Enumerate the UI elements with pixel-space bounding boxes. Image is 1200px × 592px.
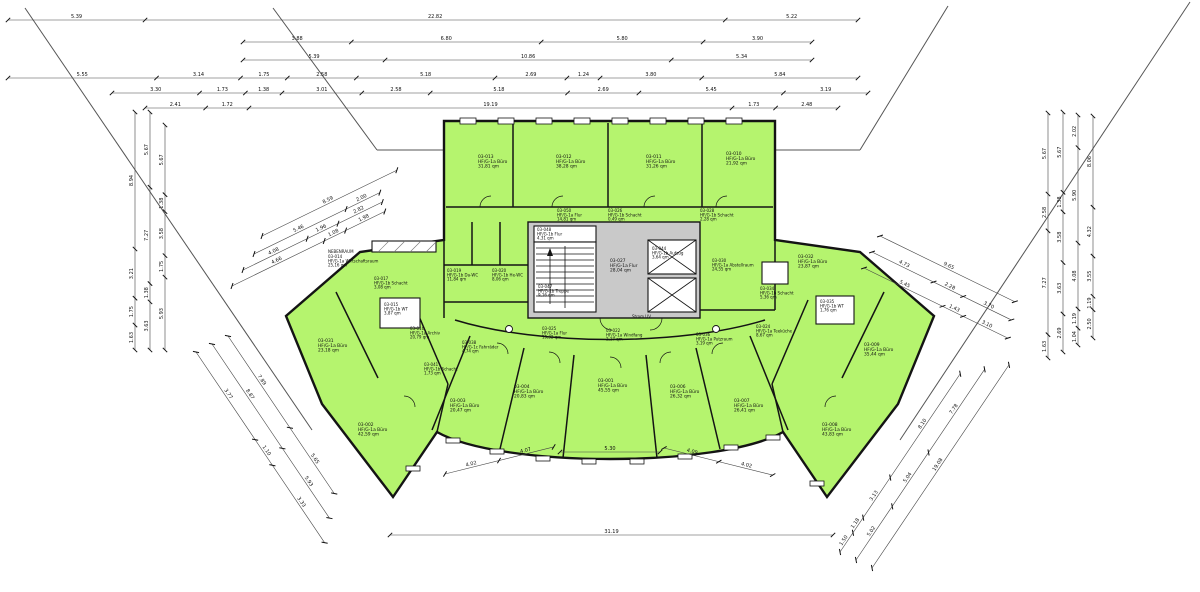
svg-text:5.80: 5.80 [617,36,628,42]
column [713,326,720,333]
svg-text:1.63: 1.63 [129,332,135,343]
svg-text:10.86: 10.86 [521,54,535,60]
svg-text:1.72: 1.72 [222,102,233,108]
svg-text:5.45: 5.45 [706,87,717,93]
svg-text:1.38: 1.38 [144,287,150,298]
svg-text:3.58: 3.58 [159,228,165,239]
svg-text:3.01: 3.01 [316,87,327,93]
svg-text:1.75: 1.75 [129,306,135,317]
svg-text:22.82: 22.82 [428,14,442,20]
floor-plan-page: 03-013HF/G-1a Büro31,81 qm 03-012HF/G-1a… [0,0,1200,592]
svg-text:3.63: 3.63 [1057,283,1063,294]
svg-text:1.24: 1.24 [578,72,589,78]
svg-text:1.73: 1.73 [748,102,759,108]
svg-text:8.94: 8.94 [129,175,135,186]
shaft-room-right [762,262,788,284]
svg-text:5.55: 5.55 [77,72,88,78]
svg-text:19.19: 19.19 [483,102,497,108]
dim-chain-top3: 5.3910.865.34 [241,54,814,62]
svg-text:2.02: 2.02 [1072,126,1078,137]
dim-chain-left3: 5.931.753.581.385.67 [159,123,167,352]
staircase [534,242,596,312]
svg-text:5.84: 5.84 [774,72,785,78]
svg-text:3.55: 3.55 [1087,271,1093,282]
svg-text:31.19: 31.19 [604,529,618,535]
dim-chain-right2: 2.693.633.581.385.67 [1057,110,1065,354]
svg-text:3.63: 3.63 [144,320,150,331]
svg-text:1.73: 1.73 [217,87,228,93]
svg-text:5.93: 5.93 [159,308,165,319]
svg-text:5.90: 5.90 [1072,190,1078,201]
svg-text:1.19: 1.19 [1087,297,1093,308]
svg-text:5.67: 5.67 [144,144,150,155]
svg-text:4.02: 4.02 [740,461,752,470]
svg-text:2.48: 2.48 [801,102,812,108]
svg-text:5.18: 5.18 [493,87,504,93]
svg-text:5.39: 5.39 [308,54,319,60]
svg-text:3.30: 3.30 [150,87,161,93]
dim-chain-diag-left4: 8.59 [257,164,399,239]
svg-text:2.69: 2.69 [525,72,536,78]
svg-text:7.27: 7.27 [1042,277,1048,288]
dim-chain-top2: 3.886.805.803.90 [241,36,814,44]
svg-text:1.38: 1.38 [258,87,269,93]
dim-chain-right3: 1.041.194.085.902.02 [1072,113,1080,347]
svg-text:2.58: 2.58 [390,87,401,93]
svg-text:2.58: 2.58 [1042,207,1048,218]
svg-text:3.88: 3.88 [292,36,303,42]
svg-text:5.67: 5.67 [1042,148,1048,159]
svg-text:3.14: 3.14 [193,72,204,78]
dim-chain-right1: 1.637.272.585.67 [1042,111,1050,360]
svg-text:2.41: 2.41 [170,102,181,108]
svg-text:7.27: 7.27 [144,230,150,241]
dim-chain-top6: 2.411.7219.191.732.48 [143,102,840,110]
svg-text:1.38: 1.38 [1057,196,1063,207]
svg-text:6.80: 6.80 [441,36,452,42]
svg-text:5.34: 5.34 [736,54,747,60]
svg-text:5.18: 5.18 [420,72,431,78]
svg-text:2.69: 2.69 [1057,327,1063,338]
dim-chain-top4: 5.553.141.752.585.182.691.243.805.84 [6,72,860,80]
svg-text:2.69: 2.69 [598,87,609,93]
svg-text:5.30: 5.30 [604,446,615,452]
svg-text:3.19: 3.19 [820,87,831,93]
svg-text:1.38: 1.38 [159,198,165,209]
svg-text:4.02: 4.02 [465,460,477,469]
svg-text:2.50: 2.50 [1087,318,1093,329]
dim-chain-bottom-total: 31.19 [388,529,835,537]
svg-text:5.22: 5.22 [786,14,797,20]
dim-chain-top1: 5.3922.825.22 [6,14,860,22]
svg-text:1.63: 1.63 [1042,341,1048,352]
svg-text:19.08: 19.08 [932,457,945,472]
svg-text:3.80: 3.80 [645,72,656,78]
svg-text:8.06: 8.06 [1087,156,1093,167]
nebenraum-hatched-strip [372,241,436,252]
svg-text:1.75: 1.75 [159,261,165,272]
strom-uv-label: Strom UV [632,314,651,319]
dim-chain-top5: 3.301.731.383.012.585.182.695.453.19 [110,87,870,95]
svg-text:1.75: 1.75 [258,72,269,78]
svg-text:5.39: 5.39 [71,14,82,20]
svg-text:3.21: 3.21 [129,268,135,279]
svg-text:5.67: 5.67 [1057,147,1063,158]
svg-text:4.08: 4.08 [1072,270,1078,281]
floor-plan-canvas: 03-013HF/G-1a Büro31,81 qm 03-012HF/G-1a… [0,0,1200,592]
column [506,326,513,333]
svg-text:1.19: 1.19 [1072,313,1078,324]
svg-text:1.04: 1.04 [1072,331,1078,342]
dim-chain-left2: 3.631.387.275.67 [144,110,152,352]
svg-text:2.58: 2.58 [316,72,327,78]
svg-text:3.90: 3.90 [752,36,763,42]
dim-chain-left1: 1.631.753.218.94 [129,110,137,352]
svg-text:5.67: 5.67 [159,154,165,165]
svg-text:3.58: 3.58 [1057,232,1063,243]
svg-text:4.32: 4.32 [1087,226,1093,237]
